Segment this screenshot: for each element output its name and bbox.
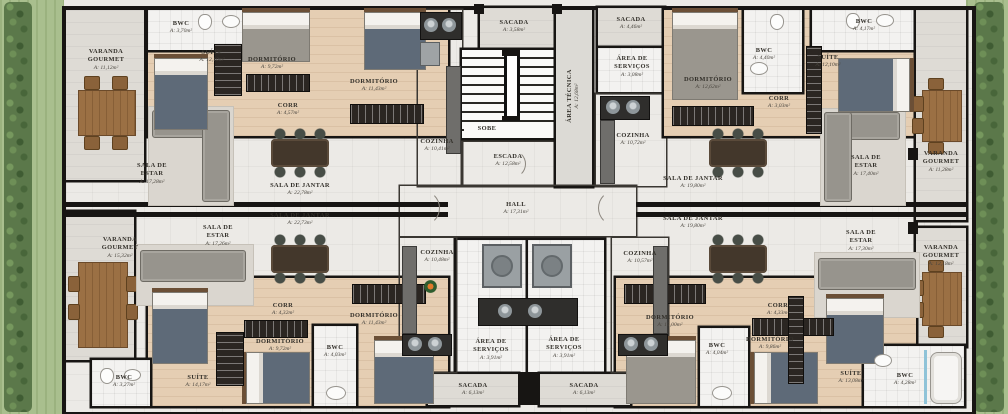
room-label-varanda-tl: VARANDA GOURMETA: 11,12m² <box>79 48 133 72</box>
double-bed-dorm1-bl <box>246 352 310 404</box>
chair <box>912 96 924 112</box>
room-label-sala-jantar-tl: SALA DE JANTARA: 22,78m² <box>260 182 340 198</box>
wardrobe <box>246 74 310 92</box>
room-label-dorm2-tl: DORMITÓRIOA: 11,43m² <box>344 78 404 94</box>
room-label-bwc1-tr: BWCA: 4,40m² <box>744 47 784 63</box>
washbasin-tl <box>222 15 240 28</box>
room-label-bwc2-br: BWCA: 4,28m² <box>885 372 925 388</box>
room-label-dorm1-br: DORMITÓRIOA: 15,00m² <box>640 314 700 330</box>
pillar-sacada-top-right <box>552 4 562 14</box>
washer-right <box>532 244 572 288</box>
chair <box>912 118 924 134</box>
double-bed-suite-tr <box>838 58 910 112</box>
chair <box>112 136 128 150</box>
room-label-sala-estar-tr: SALA DE ESTARA: 17,40m² <box>844 154 888 178</box>
room-label-dorm2-br: DORMITÓRIOA: 9,86m² <box>740 336 800 352</box>
dining-set-br <box>700 232 776 286</box>
washbasin-br1 <box>712 386 732 400</box>
double-bed-dorm1-tl <box>242 12 310 62</box>
stove-tr <box>626 100 640 114</box>
stair-rail-cap-top <box>502 50 520 56</box>
wood-table-varanda-bl <box>78 262 128 348</box>
dining-table <box>271 139 329 167</box>
stair-rail-cap-bottom <box>502 116 520 121</box>
room-label-bwc2-bl: BWCA: 3,27m² <box>104 374 144 390</box>
chair <box>84 136 100 150</box>
stove-bl <box>428 337 442 351</box>
dining-set-tr <box>700 126 776 180</box>
washer-left <box>482 244 522 288</box>
washbasin-bl1 <box>326 386 346 400</box>
pillar-sacada-top-left <box>474 4 484 14</box>
room-label-escada: ESCADAA: 12,58m² <box>483 153 533 169</box>
double-bed-dorm2-tl <box>364 12 426 70</box>
room-label-cozinha-br: COZINHAA: 10,57m² <box>617 250 663 266</box>
room-label-varanda-tr: VARANDA GOURMETA: 11,28m² <box>916 150 966 174</box>
room-label-dorm1-tr: DORMITÓRIOA: 12,62m² <box>678 76 738 92</box>
sofa-br <box>818 258 916 290</box>
room-label-varanda-br: VARANDA GOURMETA: 12,18m² <box>916 244 966 268</box>
room-label-corr-bl: CORRA: 4,32m² <box>263 302 303 318</box>
wood-table-varanda-tr <box>922 90 962 142</box>
laundry-sink-left <box>498 304 512 318</box>
toilet-tr1 <box>770 14 784 30</box>
wardrobe <box>672 106 754 126</box>
double-bed-dorm2-br <box>754 352 818 404</box>
room-label-bwc1-br: BWCA: 4,04m² <box>699 342 735 358</box>
double-bed-suite-bl <box>152 292 208 364</box>
door-arc-hall-right <box>598 190 634 226</box>
stove-br <box>644 337 658 351</box>
room-label-sala-jantar-tr: SALA DE JANTARA: 19,80m² <box>653 175 733 191</box>
room-label-sobe: SOBE <box>472 125 502 133</box>
room-label-corr-tr: CORRA: 3,03m² <box>759 95 799 111</box>
room-label-suite-br: SUÍTEA: 13,08m² <box>831 370 871 386</box>
chair <box>126 304 138 320</box>
room-label-cozinha-tl: COZINHAA: 10,41m² <box>414 138 460 154</box>
wood-table-varanda-tl <box>78 90 136 136</box>
hedge-right <box>974 2 1004 412</box>
room-label-dorm2-bl: DORMITÓRIOA: 11,43m² <box>344 312 404 328</box>
room-label-sacada-br: SACADAA: 6,13m² <box>559 382 609 398</box>
kitchen-strip-tr <box>600 120 615 184</box>
wood-table-varanda-br <box>922 272 962 326</box>
chair <box>68 276 80 292</box>
laundry-sink-right <box>528 304 542 318</box>
dining-table <box>271 245 329 273</box>
room-label-bwc-tl: BWCA: 3,70m² <box>161 20 201 36</box>
kitchen-sink-tl <box>424 18 438 32</box>
wall-left-wing-lower <box>66 212 448 217</box>
kitchen-sink-tr <box>606 100 620 114</box>
hedge-left <box>4 2 32 412</box>
room-label-sacada-top: SACADAA: 3,58m² <box>489 19 539 35</box>
room-label-servicos-l: ÁREA DE SERVIÇOSA: 3,91m² <box>465 338 517 362</box>
washbasin-br2 <box>874 354 892 367</box>
floor-plan-canvas: BWCA: 3,70m² SUÍTEA: 12,10m² DORMITÓRIOA… <box>0 0 1008 414</box>
door-arc-hall-left <box>404 190 440 226</box>
wall-left-wing-upper <box>66 202 448 207</box>
room-label-bwc1-bl: BWCA: 4,03m² <box>317 344 353 360</box>
kitchen-sink-br <box>624 337 638 351</box>
room-label-corr-br: CORRA: 4,33m² <box>758 302 798 318</box>
room-label-area-tecnica: ÁREA TÉCNICAA: 12,68m² <box>566 56 582 136</box>
room-label-cozinha-bl: COZINHAA: 10,48m² <box>414 249 460 265</box>
wardrobe <box>216 332 244 386</box>
wall-right-wing-upper <box>636 202 966 207</box>
room-label-servicos-r: ÁREA DE SERVIÇOSA: 3,91m² <box>538 336 590 360</box>
room-label-sala-estar-tl: SALA DE ESTARA: 17,28m² <box>130 162 174 186</box>
dining-set-tl <box>262 126 338 180</box>
room-label-sala-jantar-bl: SALA DE JANTARA: 22,73m² <box>260 212 340 228</box>
room-label-suite-tl: SUÍTEA: 12,10m² <box>192 49 232 65</box>
room-label-sala-jantar-br: SALA DE JANTARA: 19,80m² <box>653 215 733 231</box>
double-bed-suite-br <box>826 298 884 364</box>
room-label-corr-tl: CORRA: 4,57m² <box>268 102 308 118</box>
room-label-hall: HALLA: 17,31m² <box>491 201 541 217</box>
dining-set-bl <box>262 232 338 286</box>
chair <box>68 304 80 320</box>
room-label-suite-bl: SUÍTEA: 14,17m² <box>178 374 218 390</box>
wardrobe <box>244 320 308 338</box>
stove-tl <box>442 18 456 32</box>
fridge-tl <box>420 42 440 66</box>
sofa-bl <box>140 250 246 282</box>
chair <box>84 76 100 90</box>
room-label-sala-estar-bl: SALA DE ESTARA: 17,26m² <box>196 224 240 248</box>
room-label-dorm1-tl: DORMITÓRIOA: 9,72m² <box>242 56 302 72</box>
room-label-sacada-tr: SACADAA: 4,46m² <box>606 16 656 32</box>
stair-rail <box>504 56 520 118</box>
washbasin-tr1 <box>750 62 768 75</box>
room-label-sala-estar-br: SALA DE ESTARA: 17,30m² <box>839 229 883 253</box>
chair <box>112 76 128 90</box>
room-label-varanda-bl: VARANDA GOURMETA: 15,32m² <box>93 236 147 260</box>
plant <box>424 280 437 293</box>
room-label-servicos-tr: ÁREA DE SERVIÇOSA: 3,08m² <box>606 55 658 79</box>
bathtub-br2 <box>930 352 962 404</box>
wall-between-bottom-sacadas <box>518 374 540 405</box>
room-label-bwc2-tr: BWCA: 4,17m² <box>844 18 884 34</box>
wardrobe <box>350 104 424 124</box>
chair <box>928 78 944 90</box>
room-label-sacada-bl: SACADAA: 6,13m² <box>448 382 498 398</box>
room-label-dorm1-bl: DORMITÓRIOA: 9,72m² <box>250 338 310 354</box>
room-label-suite-tr: SUÍTEA: 12,10m² <box>808 54 848 70</box>
chair <box>928 326 944 338</box>
room-label-cozinha-tr: COZINHAA: 10,72m² <box>610 132 656 148</box>
double-bed-suite-tl <box>154 58 208 130</box>
dining-table <box>709 245 767 273</box>
dining-table <box>709 139 767 167</box>
kitchen-sink-bl <box>408 337 422 351</box>
pillar-varanda-br <box>908 222 918 234</box>
